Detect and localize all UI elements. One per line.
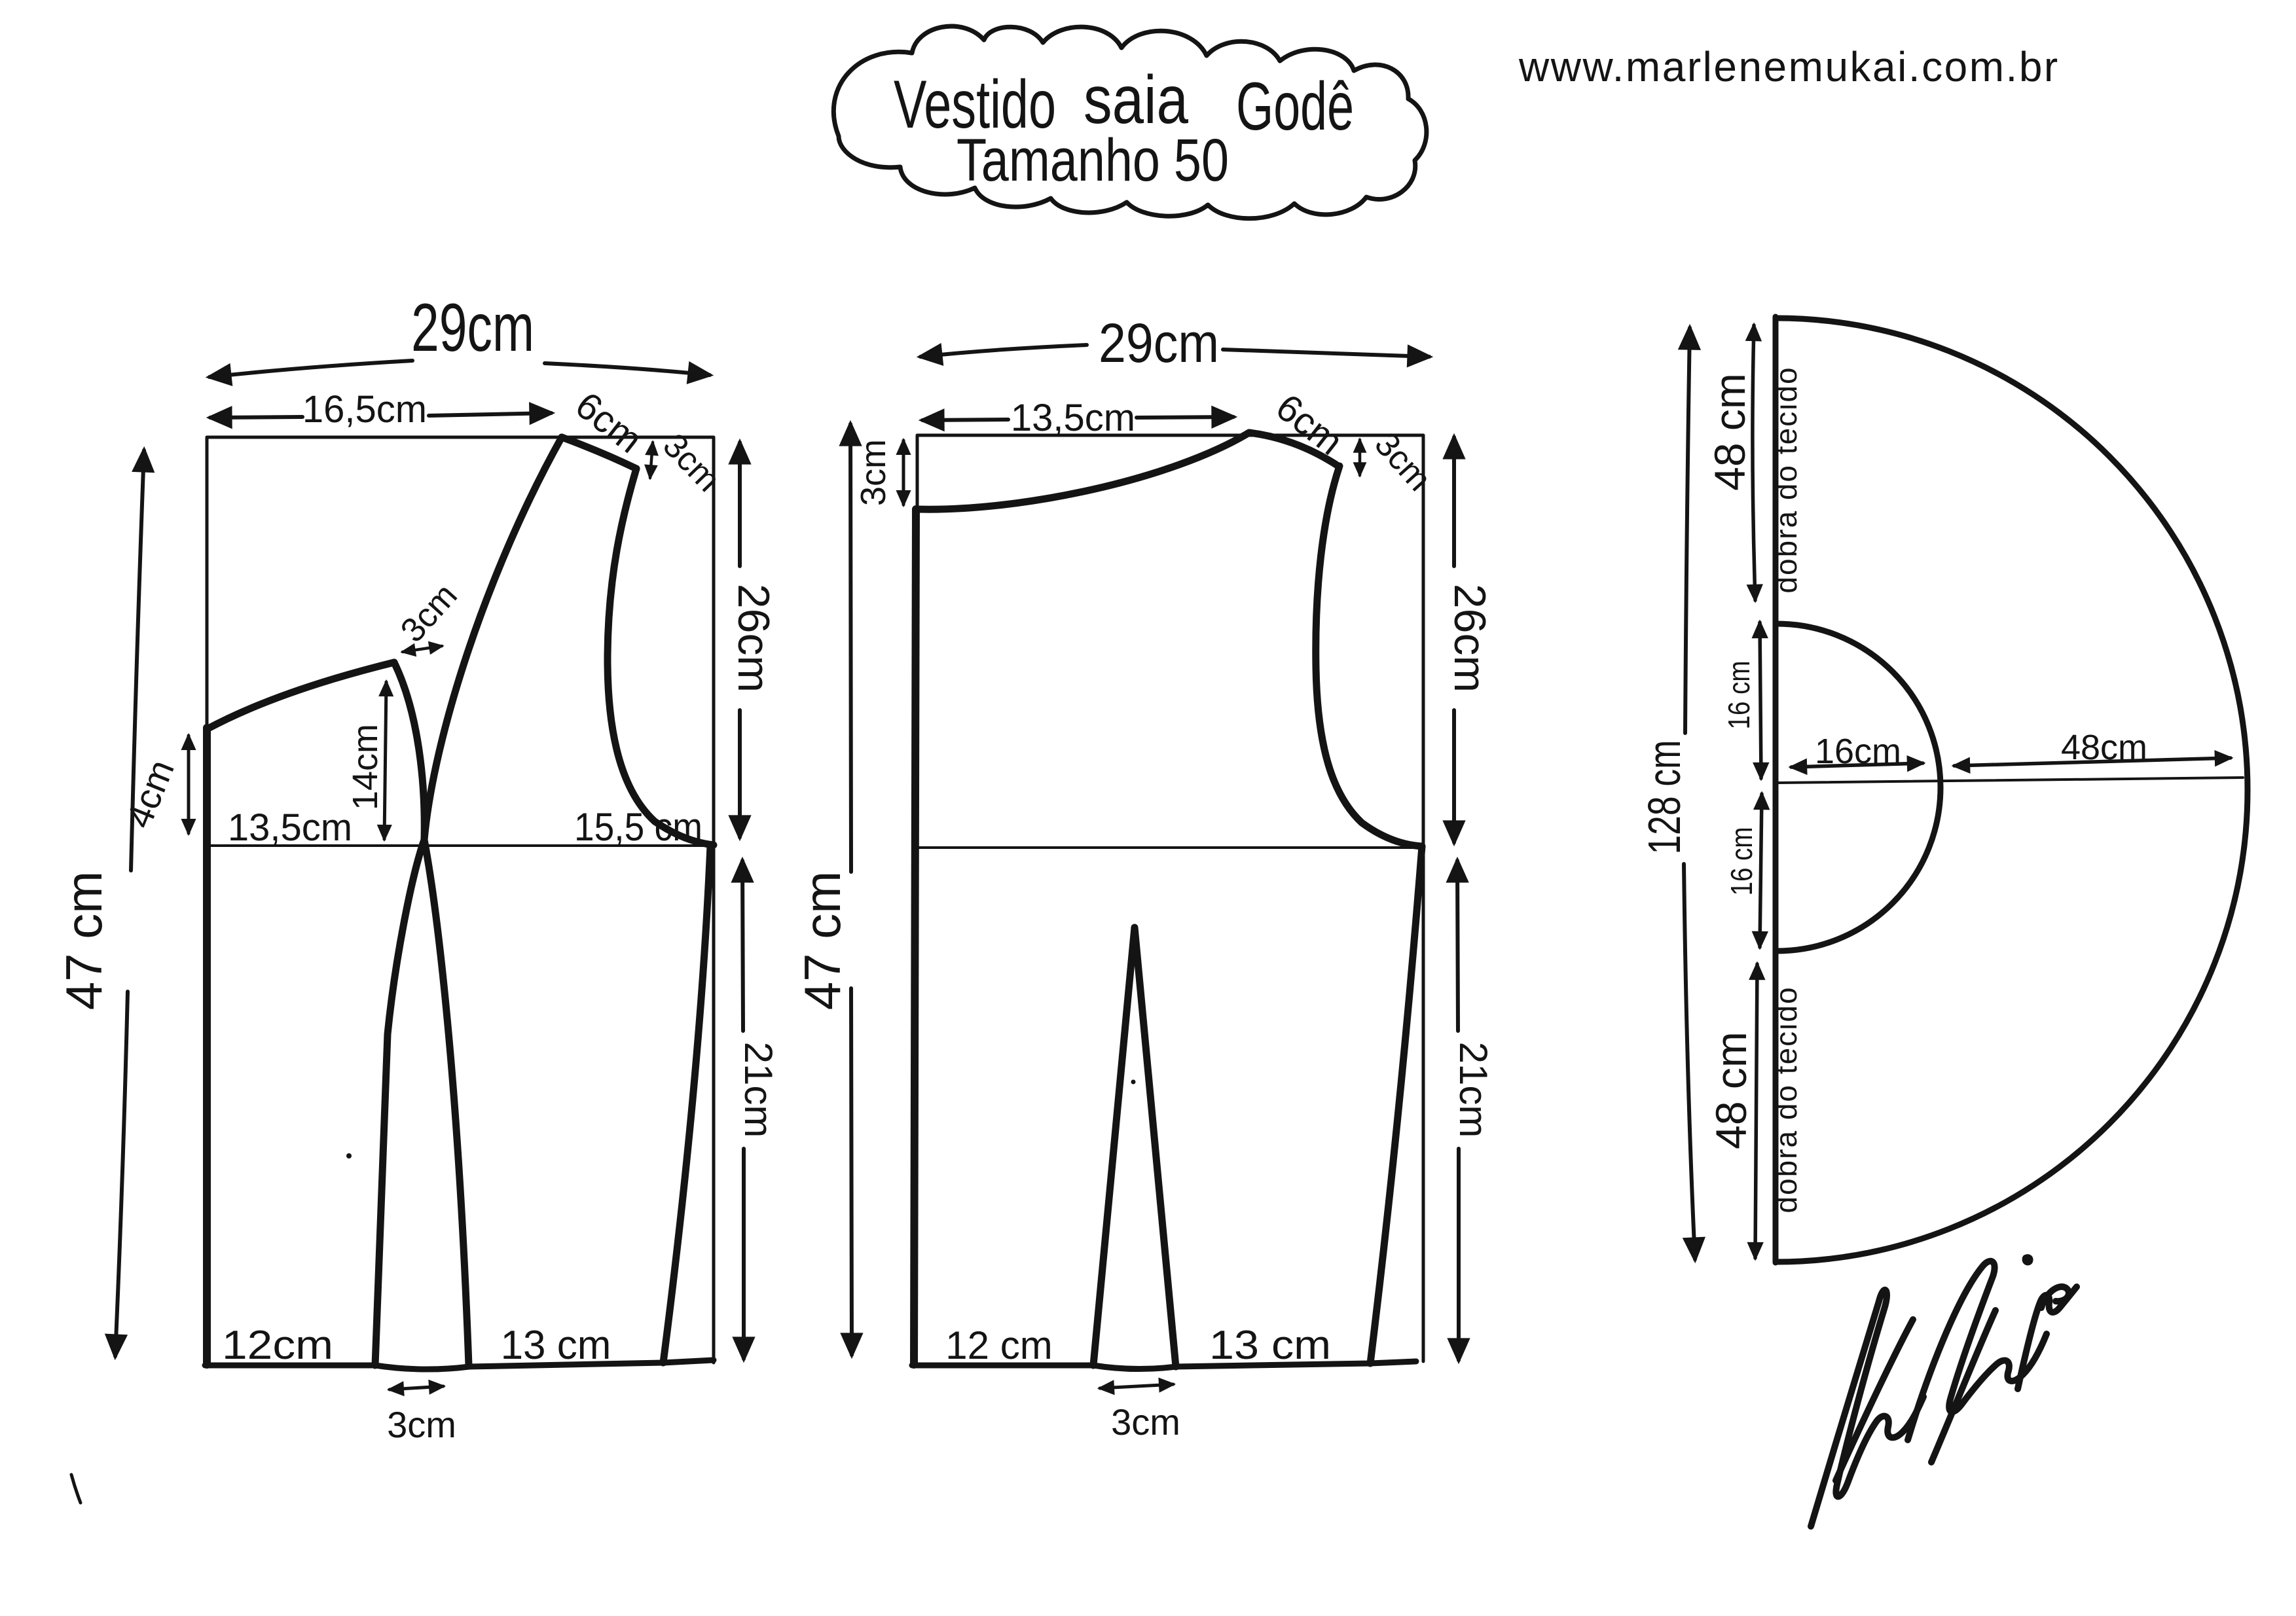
svg-text:16cm: 16cm: [1815, 732, 1901, 771]
svg-text:13,5cm: 13,5cm: [228, 806, 352, 849]
svg-text:12 cm: 12 cm: [945, 1323, 1052, 1367]
svg-text:6cm: 6cm: [568, 384, 650, 461]
svg-text:14cm: 14cm: [346, 724, 385, 810]
svg-text:13 cm: 13 cm: [501, 1323, 611, 1368]
svg-text:29cm: 29cm: [1099, 312, 1219, 374]
svg-text:13 cm: 13 cm: [1209, 1323, 1331, 1368]
svg-text:4cm: 4cm: [118, 754, 182, 834]
svg-text:26cm: 26cm: [729, 584, 778, 692]
svg-text:47 cm: 47 cm: [55, 871, 113, 1010]
svg-text:3cm: 3cm: [1111, 1401, 1180, 1443]
svg-text:47 cm: 47 cm: [793, 871, 851, 1010]
svg-text:16 cm: 16 cm: [1724, 827, 1758, 896]
svg-text:48 cm: 48 cm: [1705, 373, 1754, 491]
svg-text:3cm: 3cm: [854, 439, 893, 506]
svg-text:16 cm: 16 cm: [1722, 661, 1756, 730]
svg-text:13,5cm: 13,5cm: [1011, 397, 1135, 439]
svg-text:3cm: 3cm: [387, 1404, 456, 1445]
svg-text:29cm: 29cm: [411, 290, 534, 366]
svg-text:3cm: 3cm: [393, 577, 465, 650]
svg-text:www.marlenemukai.com.br: www.marlenemukai.com.br: [1518, 43, 2060, 90]
svg-text:dobra do tecido: dobra do tecido: [1769, 986, 1803, 1213]
svg-text:16,5cm: 16,5cm: [302, 388, 427, 431]
svg-text:21cm: 21cm: [737, 1042, 780, 1138]
svg-text:12cm: 12cm: [222, 1323, 333, 1368]
svg-text:15,5 cm: 15,5 cm: [574, 805, 702, 849]
svg-text:48 cm: 48 cm: [1707, 1032, 1755, 1149]
svg-text:128 cm: 128 cm: [1639, 740, 1690, 855]
svg-text:48cm: 48cm: [2061, 728, 2147, 767]
svg-text:21cm: 21cm: [1451, 1042, 1495, 1138]
svg-text:Godê: Godê: [1236, 69, 1354, 145]
svg-text:Tamanho 50: Tamanho 50: [957, 127, 1229, 194]
svg-text:26cm: 26cm: [1445, 584, 1495, 692]
svg-text:dobra do tecido: dobra do tecido: [1769, 366, 1803, 593]
